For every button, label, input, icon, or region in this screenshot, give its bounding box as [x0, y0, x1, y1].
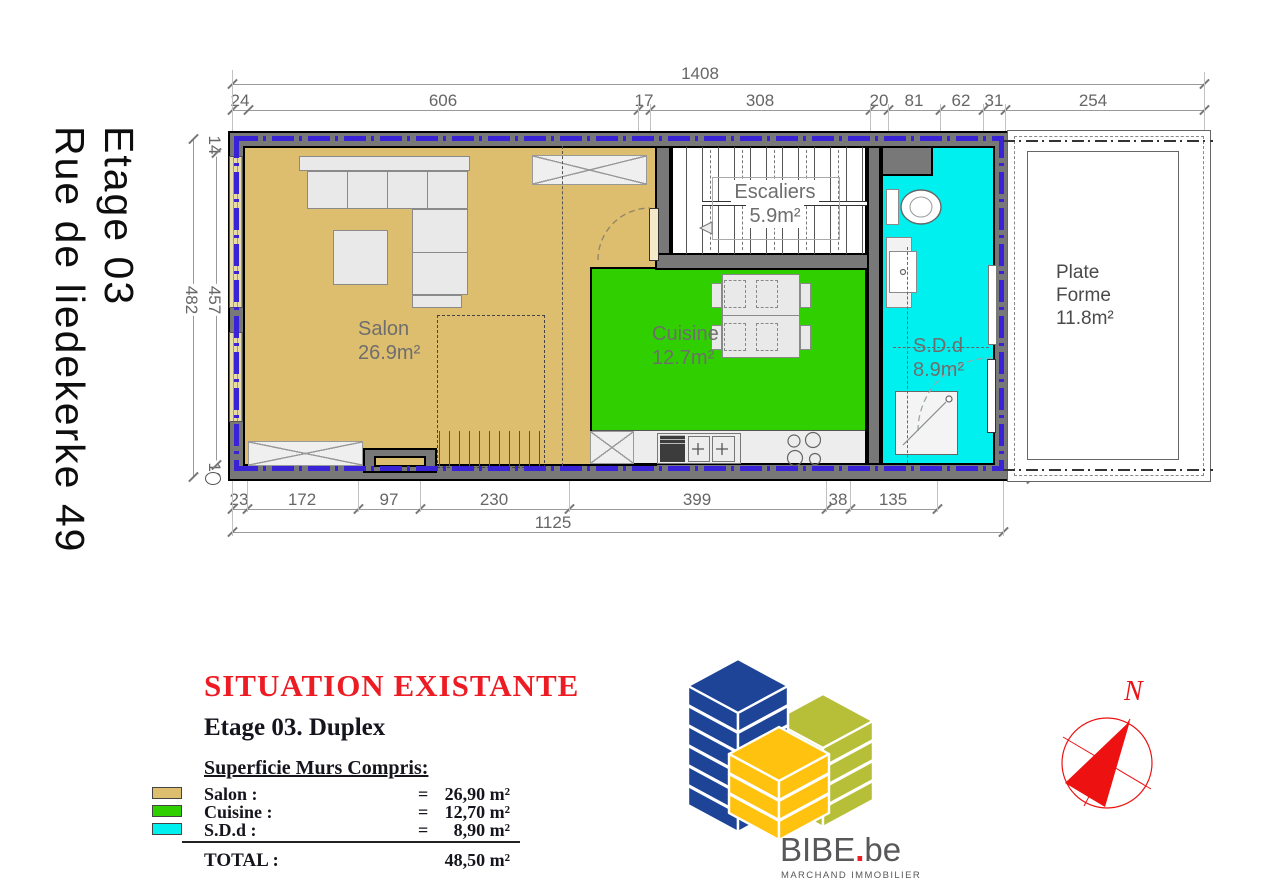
- door-swing-arc: [598, 208, 650, 260]
- tap-icon: [716, 443, 728, 455]
- wordmark-dot: .: [855, 831, 864, 868]
- legend-title: SITUATION EXISTANTE: [204, 668, 579, 704]
- legend-total-rule: [182, 841, 520, 843]
- legend-row-label: S.D.d :: [204, 820, 257, 841]
- stair-arrow-icon: [700, 222, 712, 234]
- legend-swatch-cuisine: [152, 805, 182, 817]
- door-swing-arc: [918, 358, 991, 431]
- basin-drain: [901, 270, 906, 275]
- legend-section-title: Superficie Murs Compris:: [204, 757, 428, 780]
- legend-swatch-sdd: [152, 823, 182, 835]
- compass-north-label: N: [1124, 676, 1143, 708]
- cooktop-ring: [806, 433, 821, 448]
- shower-diagonal: [903, 402, 946, 445]
- legend-swatch-salon: [152, 787, 182, 799]
- bibe-logo-icon: [668, 646, 890, 846]
- bibe-tagline: MARCHAND IMMOBILIER: [781, 870, 921, 881]
- compass-rose-icon: [1062, 718, 1152, 808]
- plan-annotations: [0, 0, 1275, 896]
- bibe-wordmark: BIBE.be: [780, 831, 901, 869]
- floorplan-sheet: Etage 03 Rue de liedekerke 49 1408 24 60…: [0, 0, 1275, 896]
- cooktop-ring: [788, 451, 803, 466]
- wordmark-tld: be: [864, 831, 901, 868]
- legend-subtitle: Etage 03. Duplex: [204, 714, 385, 742]
- shower-head: [946, 396, 952, 402]
- tap-icon: [692, 443, 704, 455]
- cooktop-ring: [810, 454, 821, 465]
- legend-total-label: TOTAL :: [204, 850, 279, 872]
- toilet-bowl: [901, 190, 941, 224]
- legend-total-value: 48,50 m²: [430, 850, 510, 871]
- wordmark-text: BIBE: [780, 831, 855, 868]
- legend-row-value: 8,90 m²: [430, 820, 510, 841]
- cooktop-ring: [788, 435, 800, 447]
- legend-row-eq: =: [418, 820, 428, 841]
